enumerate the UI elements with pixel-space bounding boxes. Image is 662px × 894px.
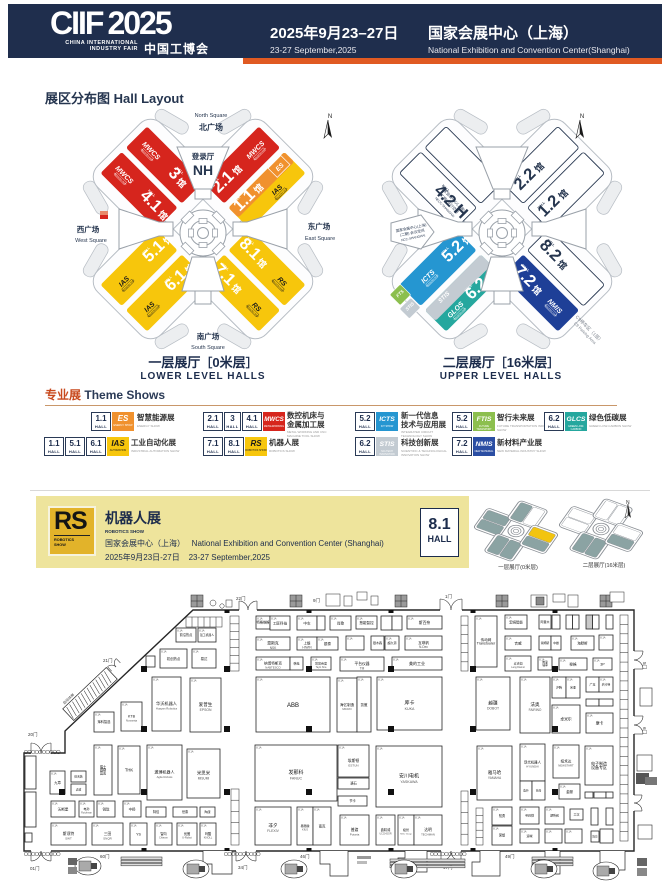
svg-text:智向: 智向 (160, 831, 166, 836)
svg-text:8.1A: 8.1A (560, 784, 566, 788)
svg-text:46门: 46门 (300, 853, 310, 860)
svg-text:穆格: 穆格 (569, 661, 577, 666)
svg-text:8.1A: 8.1A (148, 745, 154, 749)
svg-text:陶康: 陶康 (204, 809, 210, 814)
svg-text:8.1A: 8.1A (594, 658, 600, 662)
svg-text:8.1A: 8.1A (153, 677, 159, 681)
svg-text:8.1A: 8.1A (554, 745, 560, 749)
svg-text:Huayan Robotics: Huayan Robotics (156, 707, 178, 711)
svg-text:易达: 易达 (201, 656, 208, 661)
svg-text:8.1A: 8.1A (553, 705, 559, 709)
svg-text:FANUC: FANUC (290, 777, 303, 781)
svg-text:鱼升: 鱼升 (523, 789, 529, 793)
svg-text:世泰: 世泰 (182, 809, 189, 814)
svg-text:8.1A: 8.1A (331, 616, 337, 620)
svg-text:8.1A: 8.1A (600, 677, 606, 681)
svg-text:遨博机器人: 遨博机器人 (155, 769, 175, 775)
svg-text:凯傲: 凯傲 (361, 702, 368, 707)
svg-text:东广场: 东广场 (308, 221, 331, 231)
svg-text:Agile Robots: Agile Robots (157, 775, 173, 779)
svg-text:8.1A: 8.1A (358, 677, 364, 681)
svg-text:前沿热点: 前沿热点 (180, 632, 194, 637)
svg-text:湖姆斯: 湖姆斯 (541, 641, 550, 645)
svg-text:8.1A: 8.1A (477, 677, 483, 681)
svg-text:8.1A: 8.1A (156, 823, 162, 827)
svg-text:TM: TM (360, 666, 365, 670)
svg-text:中车: 中车 (303, 620, 311, 625)
svg-text:Ruichman: Ruichman (81, 812, 92, 815)
svg-text:8.1A: 8.1A (560, 658, 566, 662)
svg-text:8.1A: 8.1A (188, 749, 194, 753)
svg-text:8.1A: 8.1A (256, 745, 262, 749)
svg-text:West Square: West Square (75, 238, 107, 244)
svg-text:增富商度: 增富商度 (315, 661, 327, 666)
svg-text:非夕: 非夕 (268, 822, 278, 829)
svg-text:8.1A: 8.1A (119, 746, 125, 750)
svg-text:8.1A: 8.1A (298, 807, 304, 811)
svg-text:8.1A: 8.1A (271, 616, 277, 620)
svg-text:鑫精诚: 鑫精诚 (381, 827, 391, 832)
svg-text:8.1A: 8.1A (377, 746, 383, 750)
svg-text:8.1A: 8.1A (476, 616, 482, 620)
svg-text:FAIRINO: FAIRINO (529, 708, 542, 712)
svg-text:简亮: 简亮 (592, 834, 598, 838)
svg-text:银泰: 银泰 (324, 641, 332, 646)
svg-text:8.1A: 8.1A (95, 745, 101, 749)
svg-text:8.1A: 8.1A (339, 745, 345, 749)
svg-text:斯须特: 斯须特 (63, 831, 75, 836)
svg-text:莫志: 莫志 (100, 770, 107, 775)
svg-text:HIWIN: HIWIN (302, 645, 312, 649)
svg-text:NEWSTART: NEWSTART (558, 764, 574, 768)
svg-text:HYUNDAI: HYUNDAI (526, 764, 539, 768)
svg-text:湖所和: 湖所和 (550, 813, 559, 818)
svg-text:沃斯堡: 沃斯堡 (58, 806, 69, 811)
svg-text:8.1A: 8.1A (399, 815, 405, 819)
svg-text:特佳: 特佳 (153, 809, 160, 814)
svg-text:8.1A: 8.1A (408, 616, 414, 620)
svg-text:米亚: 米亚 (570, 685, 576, 690)
svg-text:占清如: 占清如 (513, 661, 522, 666)
svg-text:KUKA: KUKA (405, 707, 415, 711)
svg-text:8.1A: 8.1A (178, 823, 184, 827)
svg-text:ABB: ABB (287, 703, 299, 709)
svg-text:8.1A: 8.1A (566, 829, 572, 833)
svg-text:南广场: 南广场 (197, 331, 220, 341)
svg-text:中扬: 中扬 (129, 806, 136, 811)
svg-text:库卡: 库卡 (404, 700, 414, 707)
svg-text:摩卡: 摩卡 (596, 720, 604, 725)
svg-text:工匠科技: 工匠科技 (273, 620, 288, 625)
svg-text:YAMAHA: YAMAHA (488, 776, 502, 780)
svg-text:8.1A: 8.1A (257, 637, 263, 641)
svg-text:宏崎智能: 宏崎智能 (509, 619, 523, 624)
svg-text:Transtourer: Transtourer (477, 642, 496, 646)
svg-text:8.1A: 8.1A (521, 829, 527, 833)
svg-text:8.1A: 8.1A (587, 713, 593, 717)
svg-text:South Square: South Square (191, 345, 225, 351)
svg-text:初创热点: 初创热点 (167, 656, 181, 661)
svg-text:8.1A: 8.1A (546, 807, 552, 811)
svg-text:3P: 3P (600, 662, 605, 666)
svg-text:普渡: 普渡 (351, 827, 359, 832)
svg-text:斯百奈: 斯百奈 (419, 620, 431, 625)
svg-text:Tayin Stra: Tayin Stra (316, 666, 327, 669)
svg-text:5门: 5门 (641, 662, 648, 670)
svg-text:法奥: 法奥 (530, 701, 540, 708)
svg-text:8.1A: 8.1A (161, 649, 167, 653)
svg-text:8.1A: 8.1A (318, 637, 324, 641)
svg-text:8.1A: 8.1A (257, 657, 263, 661)
svg-text:SNQR: SNQR (103, 836, 113, 840)
svg-text:8.1A: 8.1A (521, 744, 527, 748)
svg-text:U-Robot: U-Robot (182, 836, 192, 840)
svg-text:MISUMI: MISUMI (198, 776, 210, 780)
svg-text:8.1A: 8.1A (357, 616, 363, 620)
svg-text:卓米尔: 卓米尔 (560, 716, 572, 721)
svg-text:Potaria: Potaria (350, 832, 360, 836)
svg-text:East Square: East Square (305, 236, 335, 242)
svg-text:8.1A: 8.1A (338, 678, 344, 682)
svg-text:虎波: 虎波 (76, 788, 82, 792)
svg-text:8.1A: 8.1A (257, 677, 263, 681)
svg-text:Lang Diamst: Lang Diamst (511, 666, 525, 669)
svg-text:8.1A: 8.1A (191, 678, 197, 682)
svg-text:西广场: 西广场 (77, 224, 100, 234)
svg-text:KNOLL: KNOLL (204, 836, 213, 840)
svg-text:THK: THK (125, 768, 134, 773)
svg-text:阿童木: 阿童木 (540, 619, 549, 624)
svg-text:8.1A: 8.1A (386, 636, 392, 640)
svg-text:登录厅: 登录厅 (191, 151, 215, 161)
svg-text:优傲: 优傲 (184, 831, 191, 836)
svg-text:N: N (328, 114, 332, 120)
svg-text:极智: 极智 (403, 827, 409, 832)
svg-text:运喊: 运喊 (526, 833, 532, 838)
svg-text:8.1A: 8.1A (378, 677, 384, 681)
svg-text:Novanta: Novanta (126, 719, 138, 723)
svg-text:FLEXIV: FLEXIV (267, 829, 279, 833)
svg-text:N: N (580, 114, 584, 120)
svg-text:YASKAWA: YASKAWA (400, 780, 418, 784)
svg-text:8.1A: 8.1A (122, 702, 128, 706)
svg-text:8.1A: 8.1A (546, 829, 552, 833)
svg-text:8.1A: 8.1A (256, 807, 262, 811)
svg-text:强工机器人: 强工机器人 (200, 633, 214, 637)
svg-text:爱普生: 爱普生 (199, 701, 213, 708)
svg-text:电孙: 电孙 (83, 806, 89, 811)
svg-text:8.1A: 8.1A (553, 677, 559, 681)
svg-text:1门: 1门 (445, 593, 453, 600)
svg-text:20门: 20门 (28, 731, 38, 738)
svg-text:节卡: 节卡 (349, 798, 356, 803)
svg-text:吉威: 吉威 (514, 640, 522, 645)
svg-text:01门: 01门 (30, 865, 40, 872)
svg-text:中雄: 中雄 (553, 641, 559, 645)
svg-text:YS: YS (136, 832, 141, 836)
svg-text:超久源: 超久源 (387, 640, 396, 645)
svg-text:8.1A: 8.1A (80, 801, 86, 805)
svg-text:恩斯克: 恩斯克 (267, 641, 279, 646)
svg-text:银木森: 银木森 (373, 640, 382, 645)
svg-text:锐珑: 锐珑 (103, 806, 110, 811)
svg-text:易腾脉: 易腾脉 (300, 823, 309, 828)
svg-text:Chieom: Chieom (159, 836, 168, 840)
svg-text:60门: 60门 (100, 853, 110, 860)
svg-text:ESTUN: ESTUN (348, 763, 358, 767)
svg-text:美的工业: 美的工业 (409, 660, 425, 666)
svg-text:8.1A: 8.1A (347, 636, 353, 640)
svg-text:EPSON: EPSON (200, 708, 212, 712)
svg-text:德天族: 德天族 (74, 775, 83, 779)
svg-text:North Square: North Square (195, 113, 228, 119)
svg-text:平台仪器: 平台仪器 (354, 661, 369, 666)
svg-text:玛酷: 玛酷 (205, 831, 212, 836)
svg-text:肖歌: 肖歌 (337, 620, 345, 625)
svg-text:8.1A: 8.1A (506, 615, 512, 619)
svg-text:九章: 九章 (54, 780, 61, 785)
svg-text:寻刹微: 寻刹微 (525, 813, 534, 818)
svg-text:SWT: SWT (65, 836, 72, 840)
svg-text:越疆: 越疆 (488, 700, 498, 707)
svg-text:8.1A: 8.1A (95, 712, 101, 716)
svg-text:49门: 49门 (505, 853, 515, 860)
svg-text:8.1A: 8.1A (341, 657, 347, 661)
svg-text:8.1A: 8.1A (193, 649, 199, 653)
svg-text:8.1A: 8.1A (201, 823, 207, 827)
svg-text:8.1A: 8.1A (51, 771, 57, 775)
svg-text:8.1A: 8.1A (506, 656, 512, 660)
svg-text:设备专区: 设备专区 (591, 764, 607, 770)
svg-text:珞石: 珞石 (350, 781, 356, 786)
svg-text:8.1A: 8.1A (493, 807, 499, 811)
svg-text:8.1A: 8.1A (572, 636, 578, 640)
svg-text:8.1A: 8.1A (521, 677, 527, 681)
svg-text:金服: 金服 (566, 789, 573, 794)
svg-text:KIUS: KIUS (302, 828, 308, 832)
svg-text:辉科智选: 辉科智选 (98, 719, 112, 724)
svg-text:工汉: 工汉 (573, 812, 579, 817)
svg-text:北广场: 北广场 (199, 122, 223, 132)
svg-text:NGC Group: NGC Group (400, 833, 412, 836)
svg-text:8.1A: 8.1A (199, 628, 205, 632)
svg-text:22门: 22门 (236, 595, 246, 602)
svg-text:TECHMAN: TECHMAN (421, 832, 435, 836)
svg-text:21门: 21门 (103, 657, 113, 664)
svg-text:广玉: 广玉 (589, 682, 595, 687)
svg-text:NH: NH (193, 162, 213, 178)
svg-text:8.1A: 8.1A (341, 815, 347, 819)
svg-text:8.1A: 8.1A (493, 826, 499, 830)
svg-text:8.1A: 8.1A (478, 746, 484, 750)
svg-text:8.1A: 8.1A (52, 801, 58, 805)
svg-text:8.1A: 8.1A (124, 801, 130, 805)
svg-text:8.1A: 8.1A (298, 616, 304, 620)
svg-text:发那科: 发那科 (288, 769, 303, 776)
svg-text:8.1A: 8.1A (98, 801, 104, 805)
svg-text:6门: 6门 (641, 727, 648, 735)
svg-text:8.1A: 8.1A (567, 677, 573, 681)
svg-text:南克: 南克 (319, 823, 326, 828)
svg-text:8.1A: 8.1A (377, 815, 383, 819)
svg-text:8.1A: 8.1A (177, 628, 183, 632)
svg-text:慧能智控: 慧能智控 (359, 620, 374, 625)
svg-text:8.1A: 8.1A (586, 746, 592, 750)
svg-text:MICRO: MICRO (342, 707, 352, 711)
svg-text:8.1A: 8.1A (506, 636, 512, 640)
svg-text:8.1A: 8.1A (600, 635, 606, 639)
svg-text:8.1A: 8.1A (393, 657, 399, 661)
svg-text:8.1A: 8.1A (52, 823, 58, 827)
svg-text:韩电: 韩电 (293, 661, 299, 666)
svg-text:沪腾: 沪腾 (556, 685, 562, 690)
svg-text:8.1A: 8.1A (406, 636, 412, 640)
svg-text:海默斯: 海默斯 (577, 640, 588, 645)
svg-text:荣想: 荣想 (499, 833, 506, 838)
svg-text:8.1A: 8.1A (93, 823, 99, 827)
svg-text:轴承: 轴承 (542, 663, 548, 667)
svg-text:NSK: NSK (270, 646, 277, 650)
svg-text:埃斯顿: 埃斯顿 (348, 758, 360, 763)
svg-text:海马: 海马 (536, 789, 542, 793)
svg-text:UCCHSOR: UCCHSOR (379, 833, 391, 836)
svg-text:达明: 达明 (424, 827, 432, 832)
svg-text:安川电机: 安川电机 (399, 773, 419, 780)
svg-text:8.1A: 8.1A (415, 815, 421, 819)
svg-text:34门: 34门 (238, 864, 248, 871)
svg-text:8.1A: 8.1A (314, 807, 320, 811)
svg-text:知勇: 知勇 (499, 813, 505, 818)
svg-text:8.1A: 8.1A (521, 807, 527, 811)
svg-text:DOBOT: DOBOT (487, 707, 499, 711)
svg-text:N-Dec: N-Dec (419, 645, 428, 649)
svg-text:NABTESCO: NABTESCO (265, 666, 281, 670)
svg-text:8.1A: 8.1A (131, 823, 137, 827)
svg-text:岩卡特: 岩卡特 (602, 683, 611, 687)
svg-text:特格维格: 特格维格 (257, 620, 271, 625)
svg-text:9门: 9门 (313, 597, 321, 604)
